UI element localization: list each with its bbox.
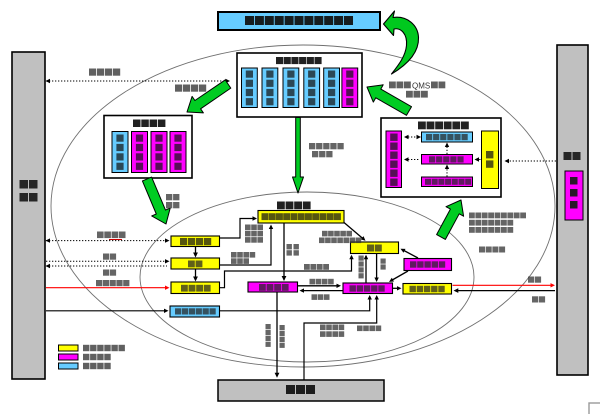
svg-text:QMS: QMS — [412, 82, 430, 91]
